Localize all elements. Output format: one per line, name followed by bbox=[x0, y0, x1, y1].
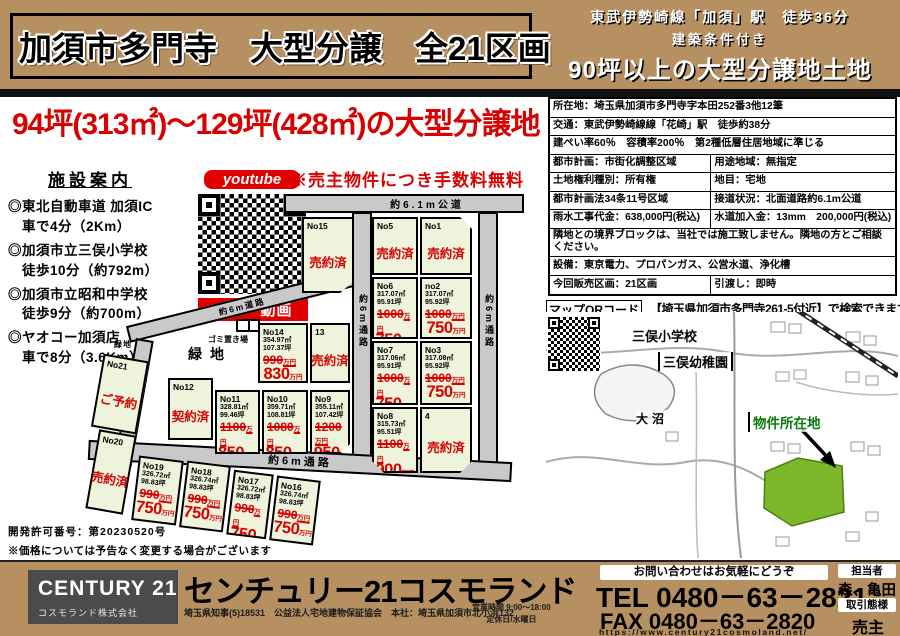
facility-name: ◎加須市立三俣小学校 bbox=[8, 243, 148, 258]
facility-name: ◎加須市立昭和中学校 bbox=[8, 287, 148, 302]
plot-no14: No14 354.97㎡ 107.37坪 990万円 830万円 bbox=[258, 323, 308, 383]
road-label: 約6m通路 bbox=[357, 294, 370, 349]
plot-price: 750万円 bbox=[374, 333, 416, 339]
plot-price: 750万円 bbox=[422, 385, 470, 401]
plot-number: No8 bbox=[374, 409, 416, 421]
footer-band: CENTURY 21 コスモランド株式会社 センチュリー21コスモランド 埼玉県… bbox=[0, 560, 900, 636]
plot-number: 4 bbox=[422, 409, 470, 421]
plot-no8: No8 315.73㎡ 95.51坪 1100万円 900万円 bbox=[372, 407, 418, 473]
map-qr-code bbox=[547, 316, 601, 372]
row-rainwater-fee: 雨水工事代金：638,000円(税込) bbox=[550, 210, 710, 228]
facility-name: ◎ヤオコー加須店 bbox=[8, 330, 120, 345]
trash-area-label: ゴミ置き場 bbox=[208, 334, 248, 345]
plot-no9: No9 355.11㎡ 107.42坪 1200万円 950万円 bbox=[310, 390, 350, 454]
plot-no11: No11 328.81㎡ 99.46坪 1100万円 850万円 bbox=[215, 390, 260, 454]
plot-status: 契約済 bbox=[170, 392, 211, 438]
plot-status: 売約済 bbox=[374, 231, 416, 273]
transaction-type: 売主 bbox=[852, 614, 884, 636]
row-boundary-note: 隣地との境界ブロックは、当社では施工致しません。隣地の方とご相談ください。 bbox=[550, 229, 895, 257]
brand-name: CENTURY 21 bbox=[38, 577, 178, 601]
table-row: 隣地との境界ブロックは、当社では施工致しません。隣地の方とご相談ください。 bbox=[550, 229, 895, 258]
row-access: 交通：東武伊勢崎線線「花崎」駅 徒歩約38分 bbox=[550, 119, 773, 134]
plot-no18: No18 326.74㎡ 98.83坪 990万円 750万円 bbox=[179, 461, 231, 533]
plot-price: 830万円 bbox=[260, 367, 306, 383]
row-road-access: 接道状況：北面道路約6.1m公道 bbox=[710, 192, 895, 210]
century21-logo: CENTURY 21 コスモランド株式会社 bbox=[28, 570, 178, 624]
plot-old-price: 1000万円 bbox=[374, 308, 416, 334]
size-headline: 94坪(313㎡)～129坪(428㎡)の大型分譲地 bbox=[12, 99, 540, 143]
row-land-rights: 土地権利種別：所有権 bbox=[550, 173, 710, 191]
plot-old-price: 1200万円 bbox=[312, 421, 348, 446]
table-row: 雨水工事代金：638,000円(税込) 水道加入金：13mm 200,000円(… bbox=[550, 210, 895, 229]
plot-number: No6 bbox=[374, 279, 416, 291]
plot-number: No5 bbox=[374, 219, 416, 231]
plot-status: 売約済 bbox=[312, 337, 348, 381]
plot-number: No12 bbox=[170, 380, 211, 392]
green-space-label: 緑地 bbox=[188, 344, 232, 364]
map-label-kindergarten: 三俣幼稚園 bbox=[658, 352, 733, 371]
plot-price: 850万円 bbox=[217, 446, 258, 454]
row-utilities: 設備：東京電力、プロパンガス、公営水道、浄化槽 bbox=[550, 259, 793, 274]
plot-no10: No10 359.71㎡ 108.81坪 1080万円 850万円 bbox=[262, 390, 308, 454]
table-row: 今回販売区画：21区画 引渡し：即時 bbox=[550, 276, 895, 295]
road-middle-vertical: 約6m通路 bbox=[352, 212, 372, 460]
plot-no15: No15 売約済 bbox=[302, 217, 354, 293]
plot-no19: No19 326.72㎡ 98.83坪 990万円 750万円 bbox=[131, 456, 184, 526]
row-handover: 引渡し：即時 bbox=[710, 276, 895, 295]
plot-status: 売約済 bbox=[304, 231, 352, 291]
row-city-plan: 都市計画：市街化調整区域 bbox=[550, 155, 710, 173]
site-plan: 約6m道路 約6.1m公道 約6m通路 約6m通路 約6m通路 緑地 緑地 ゴミ… bbox=[148, 188, 548, 560]
plot-number: no2 bbox=[422, 279, 470, 291]
transaction-type-label: 取引態様 bbox=[838, 598, 896, 612]
plot-number: No9 bbox=[312, 392, 348, 404]
holiday-text: 定休日/水曜日 bbox=[486, 615, 536, 624]
main-title: 加須市多門寺 大型分譲 全21区画 bbox=[10, 13, 532, 79]
plot-no3: No3 317.08㎡ 95.92坪 1000万円 750万円 bbox=[420, 341, 472, 405]
row-law-district: 都市計画法34条11号区域 bbox=[550, 192, 710, 210]
road-top: 約6.1m公道 bbox=[284, 194, 524, 213]
table-row: 建ぺい率60％ 容積率200％ 第2種低層住居地域に準じる bbox=[550, 136, 895, 155]
plot-old-price: 1080万円 bbox=[264, 421, 306, 447]
plot-old-price: 1100万円 bbox=[374, 438, 416, 464]
road-label: 約6m通路 bbox=[483, 294, 496, 349]
plot-status: 売約済 bbox=[422, 421, 470, 471]
youtube-banner: youtube bbox=[204, 170, 300, 189]
table-row: 交通：東武伊勢崎線線「花崎」駅 徒歩約38分 bbox=[550, 118, 895, 137]
plot-number: No10 bbox=[264, 392, 306, 404]
plot-price: 750万円 bbox=[422, 321, 470, 337]
plot-no6: No6 317.07㎡ 95.91坪 1000万円 750万円 bbox=[372, 277, 418, 339]
qr-finder-icon bbox=[548, 317, 560, 329]
qr-finder-icon bbox=[588, 317, 600, 329]
plot-no12: No12 契約済 bbox=[168, 378, 213, 440]
plot-price: 850万円 bbox=[264, 446, 306, 454]
table-row: 都市計画：市街化調整区域 用途地域：無指定 bbox=[550, 155, 895, 174]
flyer-page: 加須市多門寺 大型分譲 全21区画 東武伊勢崎線「加須」駅 徒歩36分 建築条件… bbox=[0, 0, 900, 636]
table-row: 土地権利種別：所有権 地目：宅地 bbox=[550, 173, 895, 192]
header-right: 東武伊勢崎線「加須」駅 徒歩36分 建築条件付き 90坪以上の大型分譲地土地 bbox=[542, 7, 898, 85]
license-info: 埼玉県知事(5)18531 公益法人宅地建物保証協会 本社：埼玉県加須市北小浜1… bbox=[184, 606, 514, 619]
map-label-property: 物件所在地 bbox=[748, 412, 821, 432]
plot-no4: 4 売約済 bbox=[420, 407, 472, 473]
map-label-pond: 大沼 bbox=[636, 410, 668, 427]
trash-area-icon bbox=[236, 319, 260, 332]
plot-no1: No1 売約済 bbox=[420, 217, 472, 275]
road-label: 約6m通路 bbox=[268, 451, 333, 470]
road-right-vertical: 約6m通路 bbox=[478, 212, 498, 464]
lot-size-tagline: 90坪以上の大型分譲地土地 bbox=[542, 50, 898, 85]
plot-number: No1 bbox=[422, 219, 470, 231]
row-land-category: 地目：宅地 bbox=[710, 173, 895, 191]
row-zoning: 用途地域：無指定 bbox=[710, 155, 895, 173]
plot-number: No15 bbox=[304, 219, 352, 231]
business-hours: 営業時間 9:00～18:00 定休日/水曜日 bbox=[472, 602, 551, 626]
property-info-table: 所在地：埼玉県加須市多門寺字本田252番3他12筆 交通：東武伊勢崎線線「花崎」… bbox=[548, 97, 897, 296]
staff-label: 担当者 bbox=[838, 564, 896, 578]
plot-status: 売約済 bbox=[422, 231, 470, 273]
plot-old-price: 1100万円 bbox=[217, 421, 258, 447]
green-space-label-small: 緑地 bbox=[114, 339, 132, 350]
divider-strip bbox=[0, 89, 900, 97]
plot-no16: No16 326.74㎡ 98.83坪 990万円 750万円 bbox=[269, 476, 321, 546]
plot-number: No11 bbox=[217, 392, 258, 404]
plot-price: 750万円 bbox=[374, 397, 416, 405]
website-url[interactable]: https://www.century21cosmoland.net/ bbox=[599, 627, 808, 636]
table-row: 所在地：埼玉県加須市多門寺字本田252番3他12筆 bbox=[550, 99, 895, 118]
permit-number: 開発許可番号：第20230520号 bbox=[8, 524, 166, 539]
plot-no17: No17 326.72㎡ 98.83坪 990万円 750万円 bbox=[226, 470, 274, 539]
building-condition: 建築条件付き bbox=[542, 29, 898, 48]
road-label: 約6.1m公道 bbox=[390, 196, 464, 211]
property-area-polygon bbox=[764, 458, 844, 526]
plot-number: No14 bbox=[260, 325, 306, 337]
station-access: 東武伊勢崎線「加須」駅 徒歩36分 bbox=[542, 7, 898, 27]
hours-text: 営業時間 9:00～18:00 bbox=[472, 603, 551, 612]
plot-no5: No5 売約済 bbox=[372, 217, 418, 275]
plot-old-price: 1000万円 bbox=[374, 372, 416, 398]
map-label-school: 三俣小学校 bbox=[632, 326, 697, 345]
road-label: 約6m道路 bbox=[217, 294, 266, 317]
staff-names: 森、亀田 bbox=[838, 579, 896, 600]
plot-status: ご予約 bbox=[93, 368, 144, 432]
plot-number: No3 bbox=[422, 343, 470, 355]
facility-name: ◎東北自動車道 加須IC bbox=[8, 199, 153, 214]
plot-no2: no2 317.07㎡ 95.92坪 1000万円 750万円 bbox=[420, 277, 472, 339]
row-location: 所在地：埼玉県加須市多門寺字本田252番3他12筆 bbox=[550, 100, 786, 115]
plot-status: 売約済 bbox=[88, 443, 133, 512]
plot-no13: 13 売約済 bbox=[310, 323, 350, 383]
row-coverage: 建ぺい率60％ 容積率200％ 第2種低層住居地域に準じる bbox=[550, 137, 827, 152]
plot-no7: No7 317.06㎡ 95.91坪 1000万円 750万円 bbox=[372, 341, 418, 405]
row-lots-for-sale: 今回販売区画：21区画 bbox=[550, 276, 710, 295]
table-row: 設備：東京電力、プロパンガス、公営水道、浄化槽 bbox=[550, 257, 895, 276]
table-row: 都市計画法34条11号区域 接道状況：北面道路約6.1m公道 bbox=[550, 192, 895, 211]
price-change-note: ※価格については予告なく変更する場合がございます bbox=[8, 543, 271, 558]
qr-finder-icon bbox=[548, 359, 560, 371]
plot-number: 13 bbox=[312, 325, 348, 337]
plot-number: No7 bbox=[374, 343, 416, 355]
brand-subname: コスモランド株式会社 bbox=[38, 606, 178, 619]
row-water-fee: 水道加入金：13mm 200,000円(税込) bbox=[710, 210, 895, 228]
